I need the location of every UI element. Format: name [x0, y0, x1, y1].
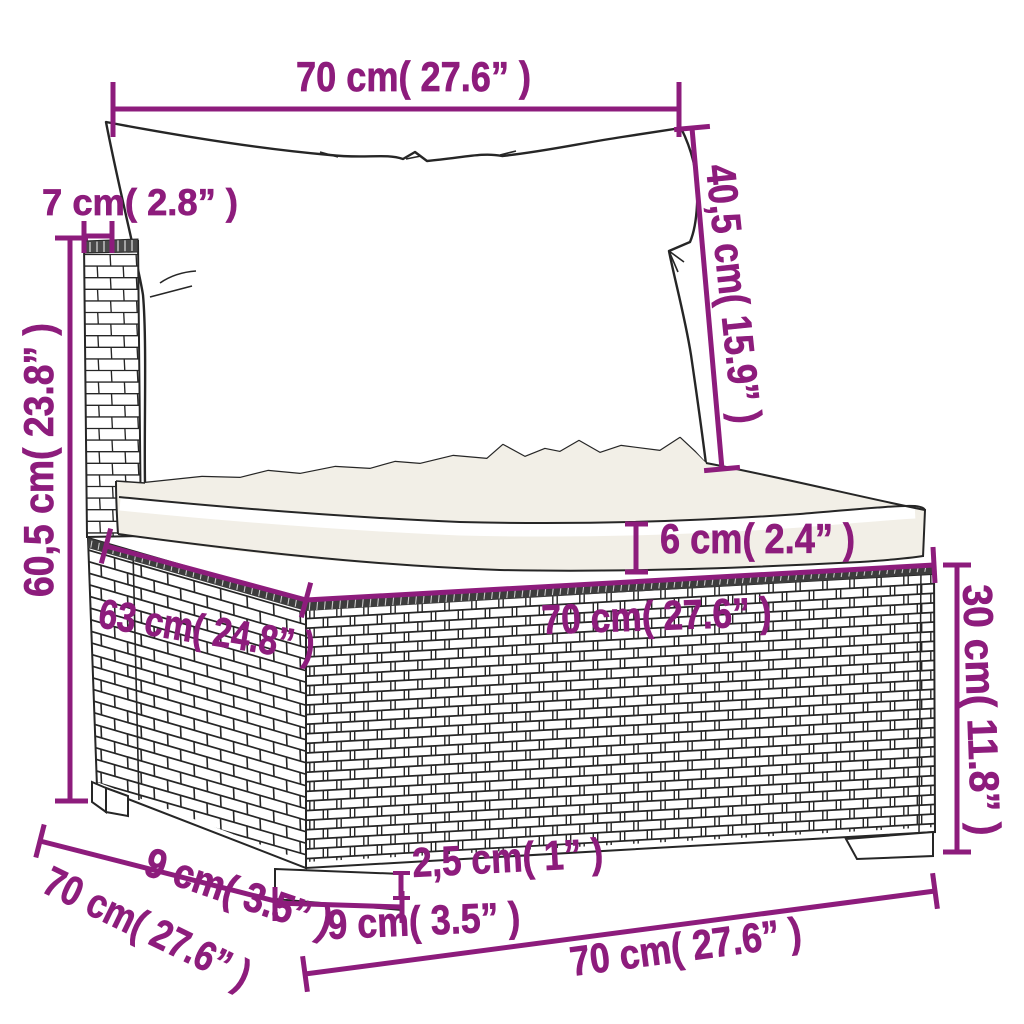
svg-text:9 cm( 3.5” ): 9 cm( 3.5” ) — [326, 893, 521, 948]
svg-text:7 cm( 2.8” ): 7 cm( 2.8” ) — [42, 181, 238, 223]
svg-text:70 cm( 27.6” ): 70 cm( 27.6” ) — [541, 588, 773, 643]
svg-text:30 cm( 11.8” ): 30 cm( 11.8” ) — [954, 584, 1010, 836]
svg-text:6 cm( 2.4” ): 6 cm( 2.4” ) — [660, 515, 855, 562]
svg-text:70 cm( 27.6” ): 70 cm( 27.6” ) — [296, 53, 531, 100]
svg-text:2,5 cm( 1” ): 2,5 cm( 1” ) — [411, 829, 604, 886]
svg-text:60,5 cm( 23.8” ): 60,5 cm( 23.8” ) — [15, 323, 62, 597]
